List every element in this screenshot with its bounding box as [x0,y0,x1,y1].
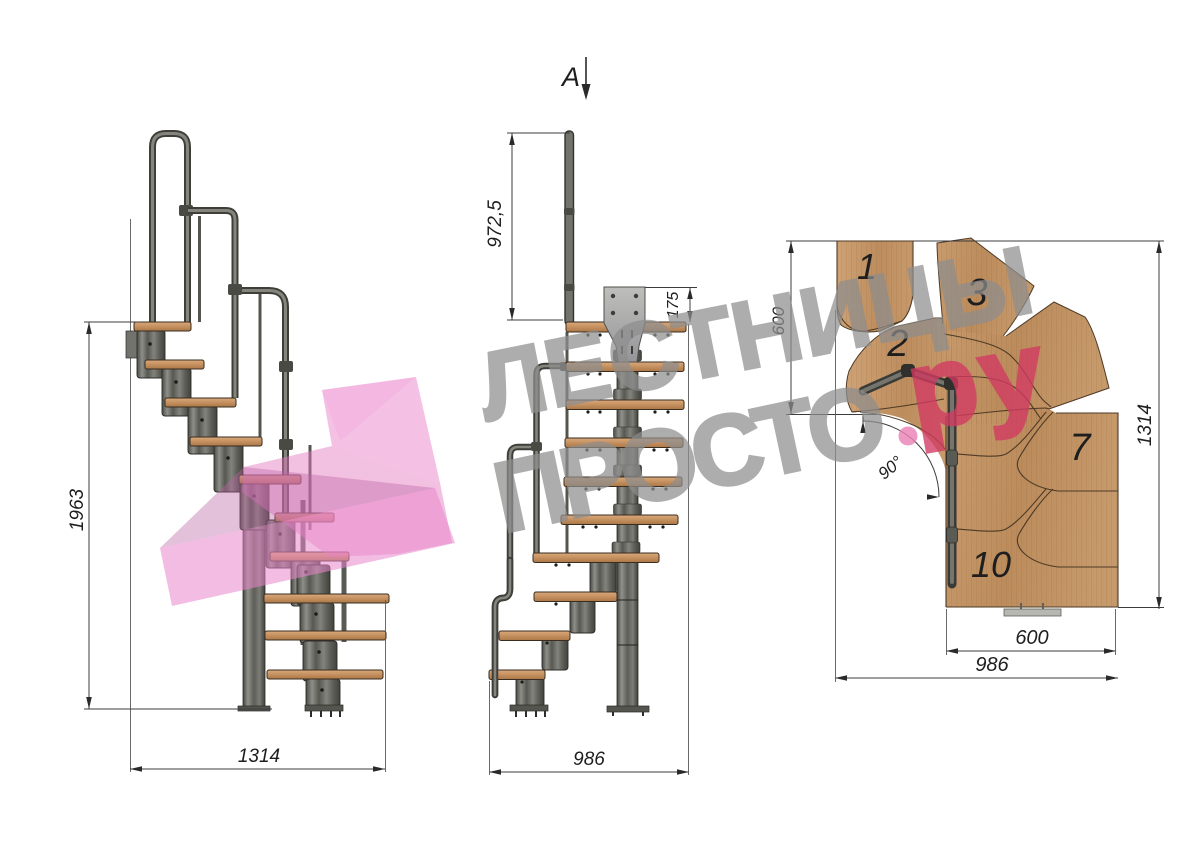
svg-text:986: 986 [975,654,1009,676]
svg-text:A: A [560,62,580,92]
svg-text:1314: 1314 [238,746,280,767]
svg-text:1963: 1963 [67,488,88,531]
svg-text:600: 600 [1015,627,1048,649]
svg-text:972,5: 972,5 [485,200,506,248]
svg-text:7: 7 [1069,427,1092,469]
svg-text:986: 986 [573,749,605,770]
svg-text:1314: 1314 [1135,404,1156,446]
svg-text:10: 10 [971,544,1011,585]
